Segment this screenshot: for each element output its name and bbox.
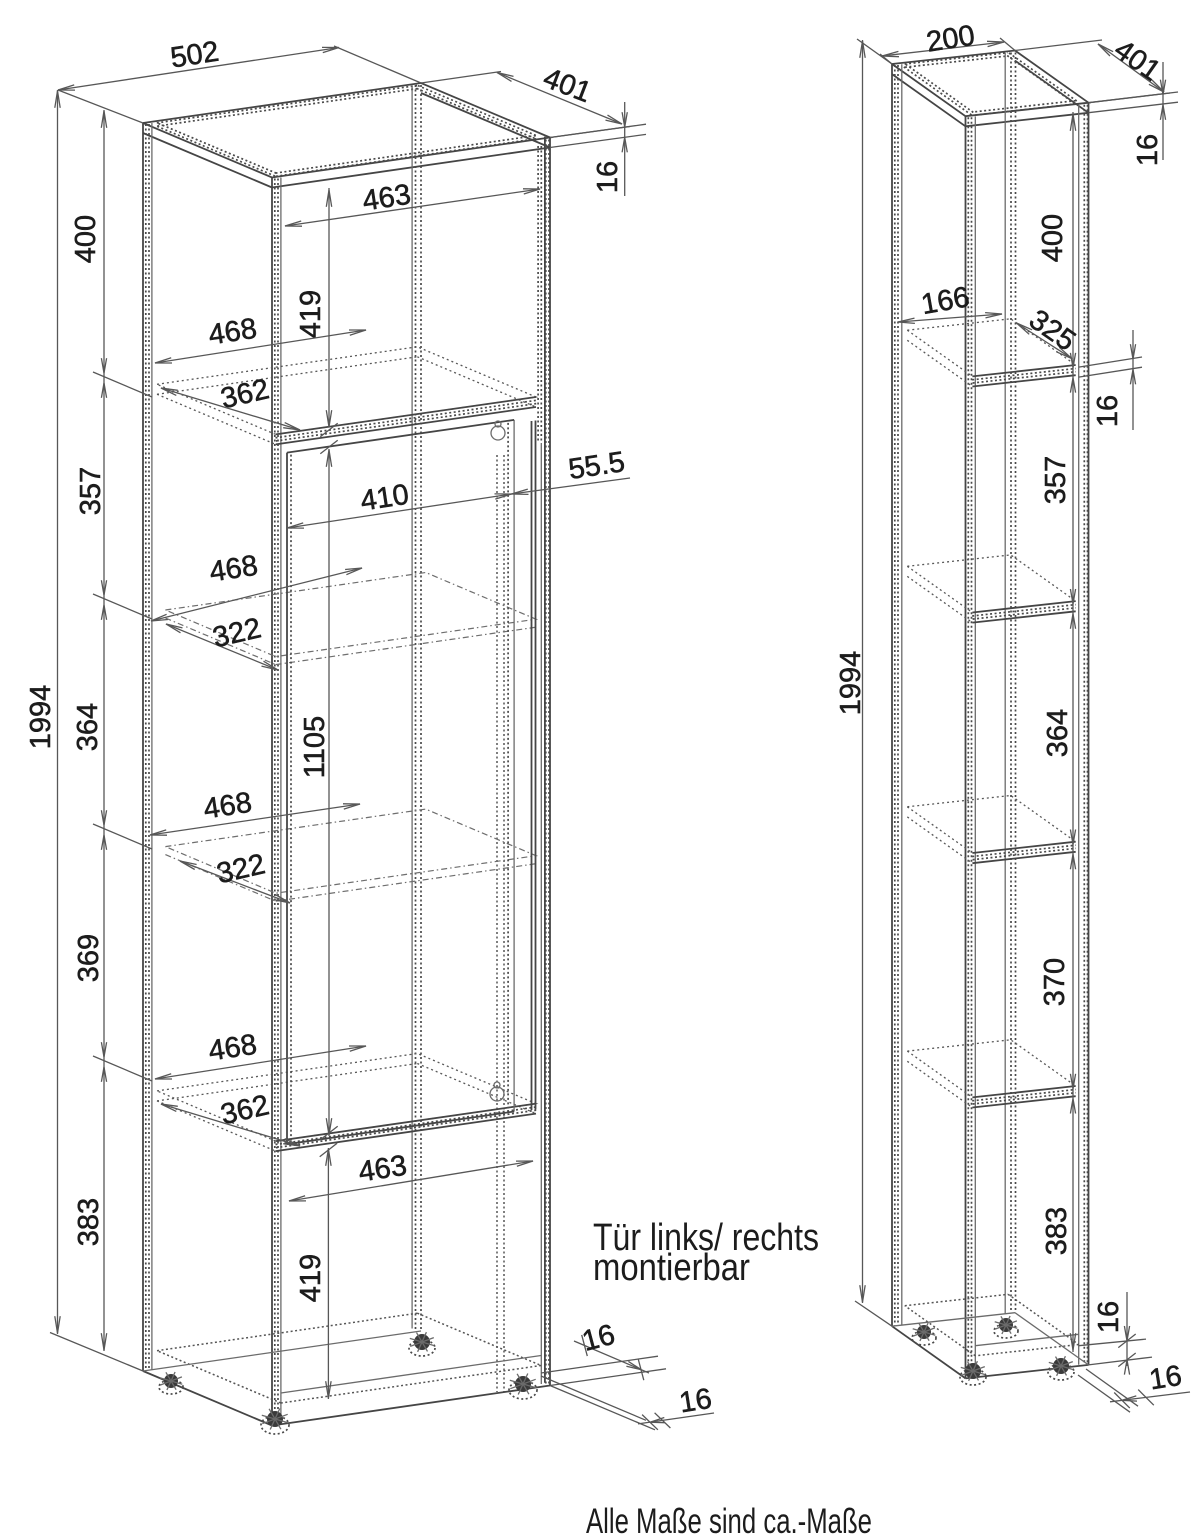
svg-text:16: 16	[1147, 1360, 1184, 1397]
svg-text:357: 357	[75, 467, 107, 515]
svg-text:419: 419	[295, 1254, 327, 1302]
svg-text:357: 357	[1040, 456, 1072, 504]
svg-text:16: 16	[592, 161, 624, 193]
svg-text:383: 383	[73, 1198, 105, 1246]
svg-text:364: 364	[72, 703, 104, 751]
svg-text:419: 419	[295, 290, 327, 338]
svg-text:16: 16	[1132, 134, 1164, 166]
svg-text:400: 400	[1037, 214, 1069, 262]
svg-text:montierbar: montierbar	[593, 1247, 750, 1289]
svg-text:16: 16	[1092, 395, 1124, 427]
svg-text:383: 383	[1041, 1207, 1073, 1255]
svg-text:1105: 1105	[299, 716, 331, 778]
svg-text:370: 370	[1039, 958, 1071, 1006]
svg-text:16: 16	[677, 1383, 714, 1420]
svg-text:16: 16	[1093, 1301, 1125, 1333]
svg-text:1994: 1994	[835, 651, 867, 716]
svg-text:Alle Maße sind ca.-Maße: Alle Maße sind ca.-Maße	[586, 1502, 872, 1539]
svg-text:1994: 1994	[25, 685, 57, 750]
svg-text:364: 364	[1042, 709, 1074, 757]
svg-text:400: 400	[70, 215, 102, 263]
svg-text:369: 369	[73, 934, 105, 982]
